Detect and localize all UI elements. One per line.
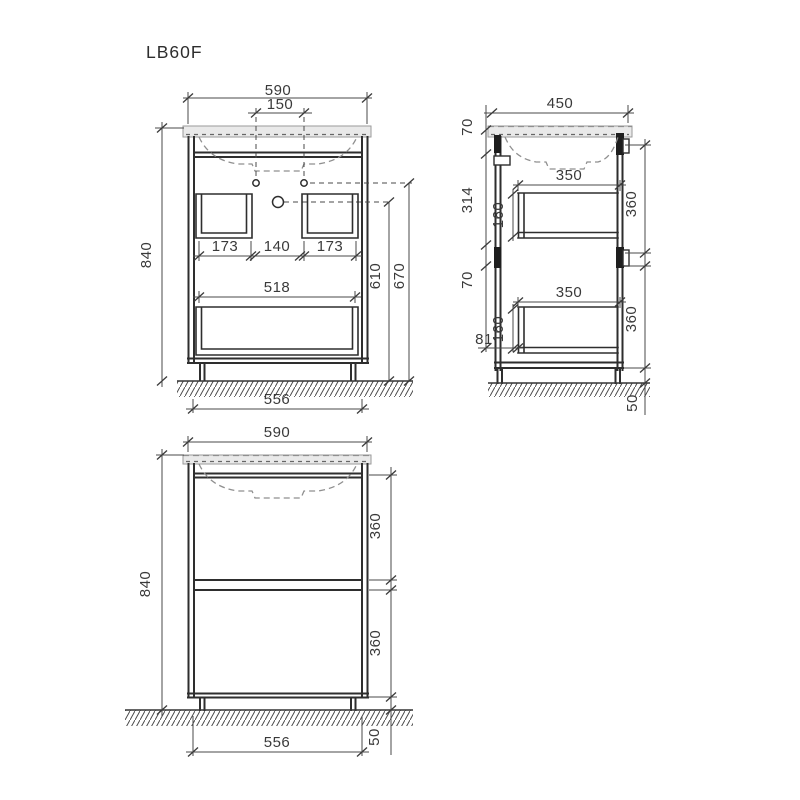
- drawer-front-tab-mid: [623, 250, 629, 266]
- dim-lower-drawer-offset: 81: [475, 331, 493, 348]
- dim-base-width: 556: [264, 391, 291, 408]
- drawer-boxes-side: [518, 193, 618, 353]
- dim-plinth-height-side: 50: [624, 394, 641, 412]
- dim-upper-drawer-depth: 350: [556, 167, 583, 184]
- vanity-dimension-drawing: LB60F 590 15: [0, 0, 800, 800]
- drawer-front-tab-top: [623, 139, 629, 153]
- ground-hatch: [177, 381, 413, 397]
- drawer-boxes-open: [196, 194, 358, 355]
- side-panel-bar-mid-left: [494, 247, 501, 268]
- dim-upper-drawer-front: 360: [623, 191, 640, 218]
- dim-plinth-height-closed: 50: [366, 728, 383, 746]
- cabinet-body: [188, 137, 368, 380]
- countertop-side: [488, 126, 632, 137]
- dim-faucet-spacing: 150: [267, 96, 294, 113]
- dimension-ticks-closed: [157, 438, 396, 757]
- side-view: 450 70 314 70 350 160 360 350 160 81 360…: [459, 95, 651, 415]
- faucet-hole-right: [301, 180, 307, 186]
- dim-overall-width-closed: 590: [264, 424, 291, 441]
- dim-lower-drawer-depth: 350: [556, 284, 583, 301]
- dim-lower-front-closed: 360: [367, 630, 384, 657]
- technical-drawing-page: LB60F 590 15: [0, 0, 800, 800]
- dim-apron-height: 70: [459, 118, 476, 136]
- dim-bottom-drawer-opening: 518: [264, 279, 291, 296]
- dim-base-width-closed: 556: [264, 734, 291, 751]
- dim-upper-cavity: 314: [459, 187, 476, 214]
- dim-drain-height: 610: [367, 263, 384, 290]
- dimension-lines-closed: [156, 436, 397, 756]
- dim-lower-drawer-front: 360: [623, 306, 640, 333]
- model-code: LB60F: [146, 42, 203, 62]
- dim-center-gap: 140: [264, 238, 291, 255]
- faucet-hole-left: [253, 180, 259, 186]
- dim-upper-drawer-box-height: 160: [490, 202, 507, 229]
- dim-overall-height: 840: [138, 242, 155, 269]
- countertop: [183, 126, 371, 137]
- front-view-closed: 590 840 360 360 556 50: [125, 424, 413, 757]
- dim-left-drawer-opening: 173: [212, 238, 239, 255]
- side-panel-bar-top-left: [494, 135, 501, 153]
- dim-right-drawer-opening: 173: [317, 238, 344, 255]
- dim-overall-depth: 450: [547, 95, 574, 112]
- construction-lines: [256, 108, 412, 202]
- countertop-closed: [183, 455, 371, 464]
- dim-mid-gap: 70: [459, 271, 476, 289]
- dim-overall-height-closed: 840: [137, 571, 154, 598]
- dim-upper-front-closed: 360: [367, 513, 384, 540]
- sink-bowl-hidden-outline-closed: [199, 464, 357, 498]
- sink-bowl-hidden-outline: [199, 137, 357, 171]
- drain-hole: [273, 197, 284, 208]
- cabinet-body-closed: [188, 464, 368, 710]
- sink-bowl-hidden-outline-side: [505, 137, 618, 169]
- overflow-fitting: [494, 156, 510, 165]
- front-view-open: 590 150 840 173 140 173 518 610 670 556: [138, 82, 414, 414]
- ground-hatch-closed: [125, 710, 413, 726]
- dim-faucet-height: 670: [391, 263, 408, 290]
